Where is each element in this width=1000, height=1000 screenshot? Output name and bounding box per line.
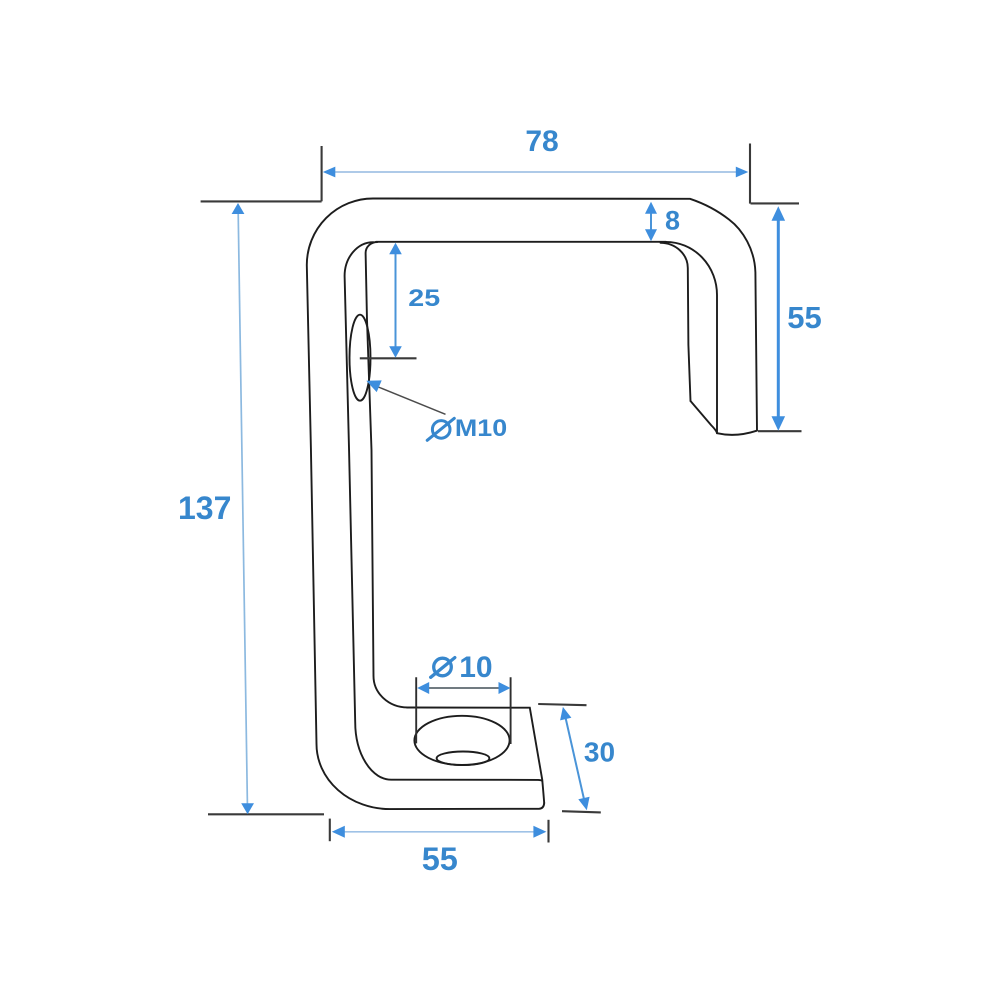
svg-text:8: 8 (665, 205, 680, 235)
svg-text:30: 30 (584, 736, 615, 767)
svg-text:137: 137 (178, 490, 231, 526)
svg-text:25: 25 (408, 284, 440, 312)
svg-text:55: 55 (787, 300, 821, 335)
svg-text:10: 10 (459, 651, 492, 684)
svg-text:55: 55 (422, 841, 458, 877)
svg-text:78: 78 (525, 125, 558, 158)
svg-text:M10: M10 (455, 415, 507, 441)
